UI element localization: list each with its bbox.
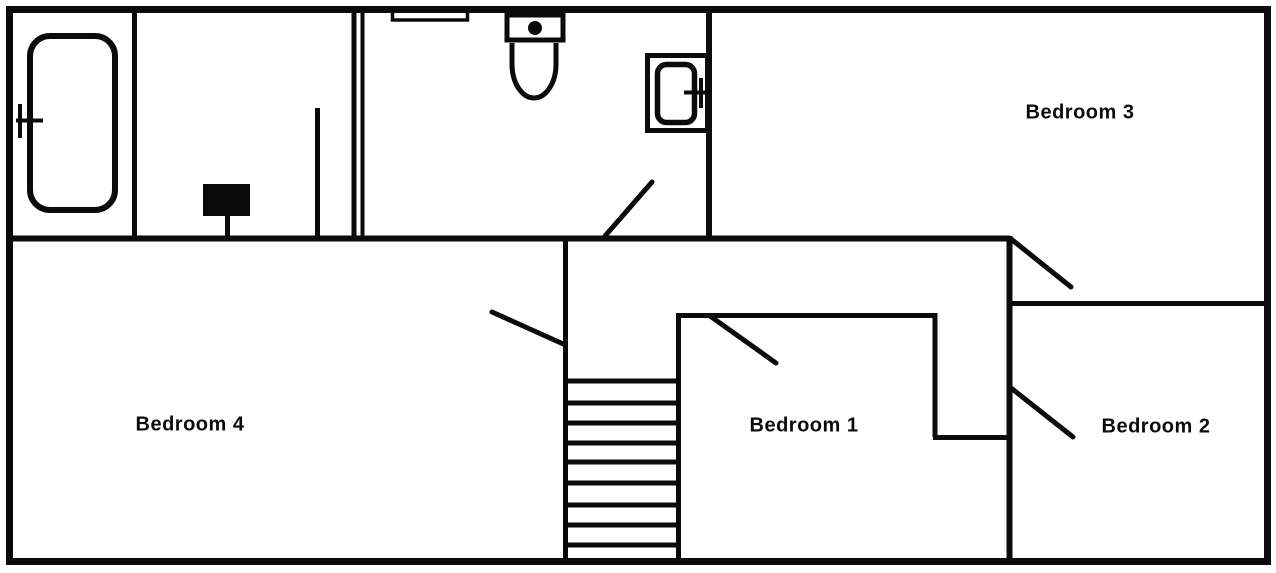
floor-plan: Bedroom 1 Bedroom 2 Bedroom 3 Bedroom 4 [0, 0, 1276, 573]
room-label-bedroom-4: Bedroom 4 [136, 414, 245, 437]
toilet-flush-button [528, 21, 542, 35]
door-swing-bedroom-4-icon [492, 312, 566, 345]
vanity-counter-icon [393, 11, 468, 20]
floor-plan-drawing [0, 0, 1276, 573]
door-swing-bedroom-1-icon [710, 316, 776, 363]
chimney-body [203, 184, 250, 216]
chimney-box-icon [203, 184, 250, 238]
wall-sink-icon [648, 56, 708, 131]
staircase-icon [568, 381, 676, 545]
bathtub-icon [30, 36, 115, 210]
door-swing-bathroom-icon [605, 182, 652, 236]
room-label-bedroom-2: Bedroom 2 [1102, 416, 1211, 439]
door-swing-bedroom-3-icon [1011, 239, 1071, 287]
door-swing-bedroom-2-icon [1011, 388, 1073, 437]
toilet-icon [507, 15, 563, 98]
toilet-bowl [512, 43, 556, 98]
room-label-bedroom-3: Bedroom 3 [1026, 102, 1135, 125]
outer-wall [10, 10, 1268, 562]
room-label-bedroom-1: Bedroom 1 [750, 415, 859, 438]
